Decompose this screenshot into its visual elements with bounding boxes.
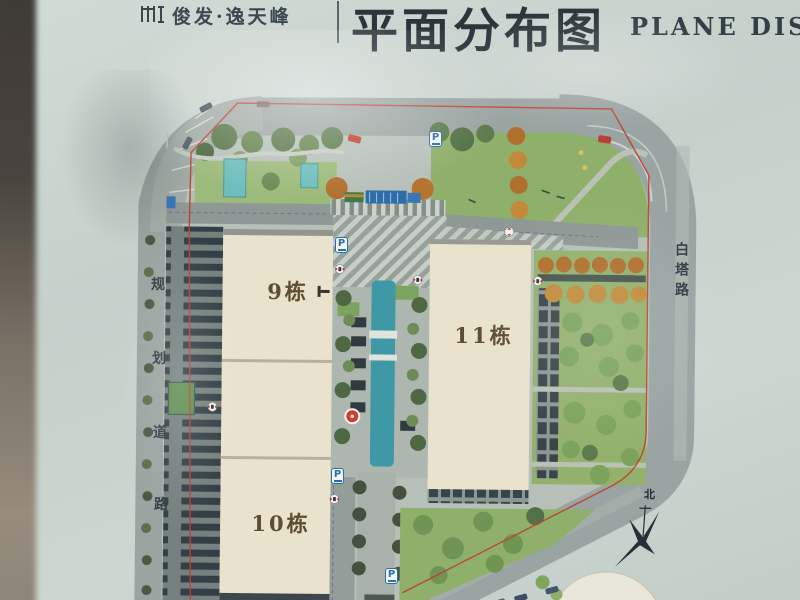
location-marker-icon	[345, 409, 359, 423]
building-11-label: 11栋	[429, 320, 539, 350]
building-10-label: 10栋	[226, 508, 336, 538]
parking-sign-icon: P	[335, 237, 348, 253]
brand-name: 俊发·逸天峰	[172, 2, 292, 29]
parking-sign-icon: P	[429, 131, 442, 147]
page-title: 平面分布图	[351, 0, 606, 61]
east-garden	[532, 250, 648, 485]
building-11-block	[427, 239, 531, 504]
road-label-west-char1: 规	[151, 274, 165, 294]
site-plan-map	[134, 62, 700, 600]
road-label-west-char2: 划	[152, 348, 166, 368]
parking-sign-icon: P	[385, 568, 398, 584]
site-plan-board-photo: 9栋 10栋 11栋 规 划 道 路 白塔路 北 P P P P 俊发·逸天峰 …	[0, 0, 800, 600]
building-9-label: 9栋	[233, 276, 343, 306]
parking-sign-icon: P	[331, 468, 344, 484]
map-canvas	[134, 62, 700, 600]
foreground-blur-edge	[0, 0, 36, 600]
road-label-west-char3: 道	[153, 422, 167, 442]
compass-north-label: 北	[644, 486, 655, 502]
road-label-west-char4: 路	[154, 494, 168, 514]
page-title-english: PLANE DIST	[630, 12, 800, 41]
header-divider	[337, 1, 339, 43]
brand-logo-icon	[139, 3, 167, 25]
road-label-east: 白塔路	[671, 242, 691, 302]
